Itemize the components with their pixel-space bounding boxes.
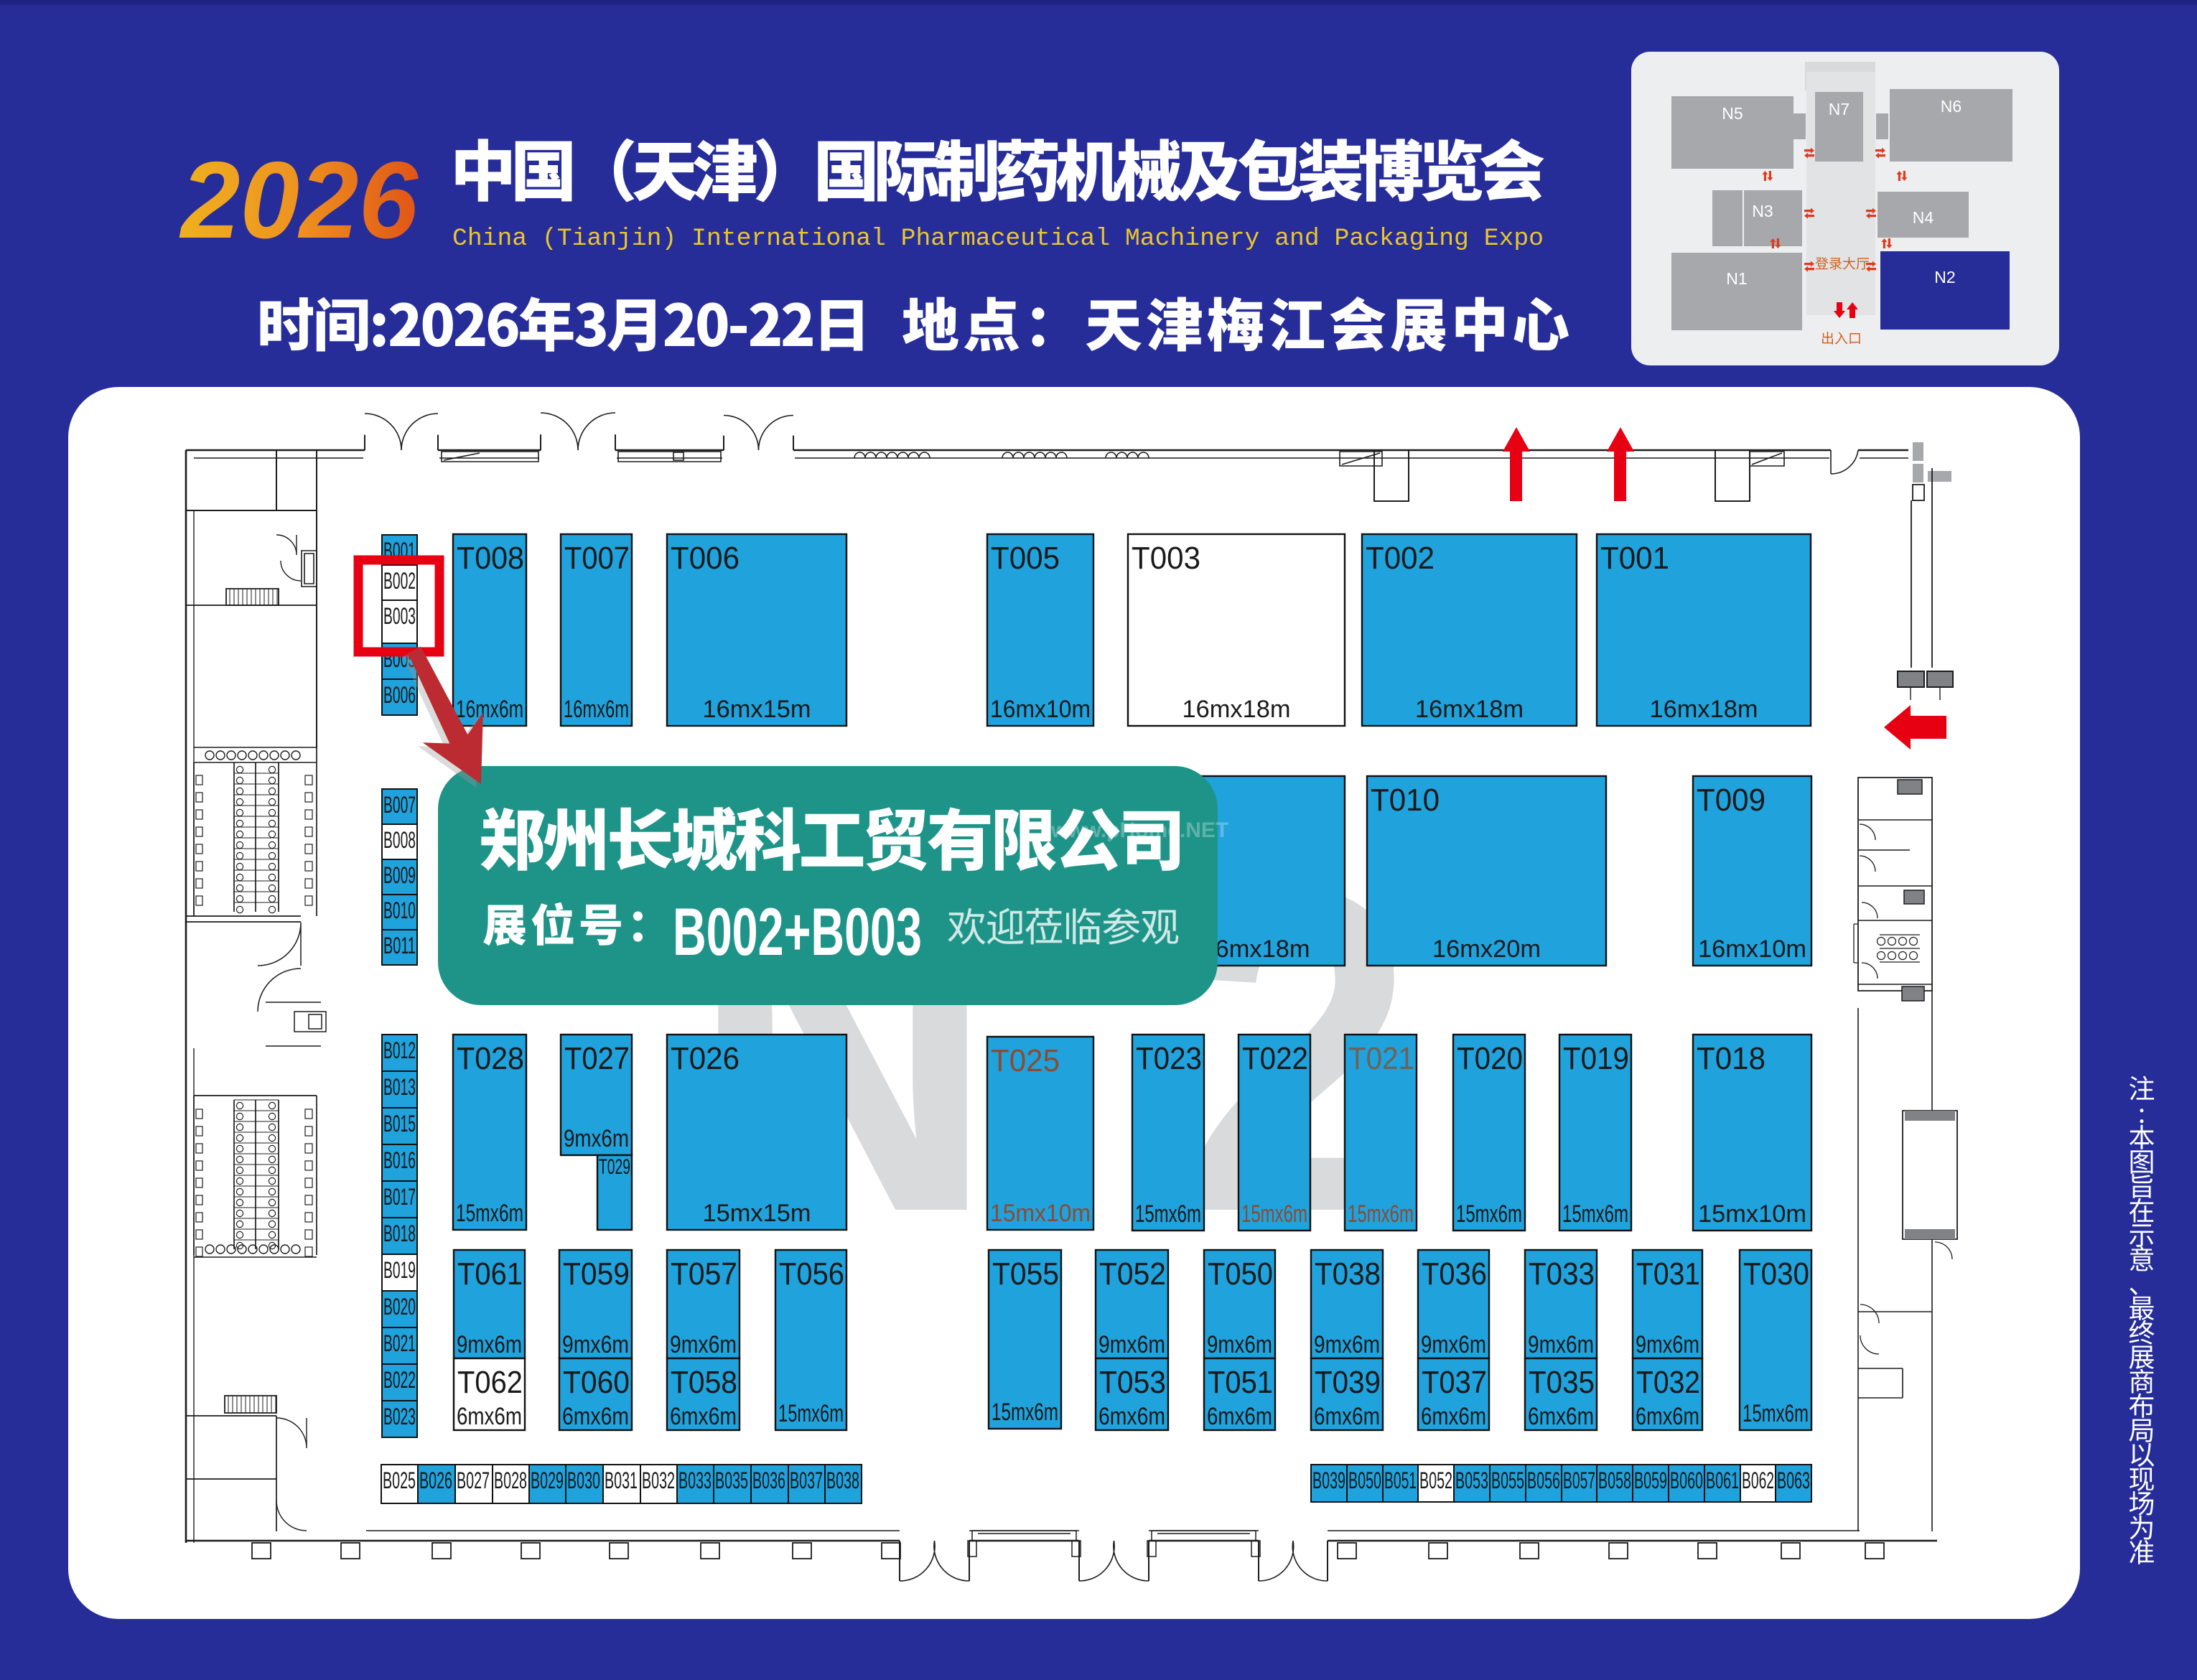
- svg-text:T059: T059: [563, 1256, 630, 1292]
- svg-text:B062: B062: [1742, 1467, 1774, 1493]
- svg-text:B011: B011: [383, 933, 416, 958]
- svg-text:B003: B003: [383, 603, 416, 629]
- svg-text:9mx6m: 9mx6m: [1207, 1331, 1272, 1358]
- svg-text:T033: T033: [1529, 1256, 1595, 1292]
- svg-text:6mx6m: 6mx6m: [457, 1403, 522, 1430]
- svg-text:T035: T035: [1529, 1365, 1595, 1400]
- svg-text:B007: B007: [383, 792, 416, 818]
- svg-text:N4: N4: [1913, 208, 1934, 227]
- svg-text:B055: B055: [1491, 1467, 1524, 1493]
- svg-text:T023: T023: [1136, 1041, 1202, 1076]
- svg-text:N5: N5: [1722, 104, 1743, 123]
- svg-text:N3: N3: [1752, 202, 1773, 220]
- svg-text:B031: B031: [605, 1467, 638, 1493]
- svg-text:N7: N7: [1829, 100, 1850, 118]
- svg-text:B023: B023: [383, 1404, 416, 1429]
- svg-text:www.pHome.NET: www.pHome.NET: [1050, 818, 1228, 842]
- svg-text:T009: T009: [1697, 783, 1765, 818]
- svg-text:T055: T055: [992, 1256, 1059, 1292]
- svg-text:B063: B063: [1777, 1467, 1810, 1493]
- svg-text:B015: B015: [383, 1111, 416, 1137]
- svg-text:9mx6m: 9mx6m: [670, 1331, 737, 1358]
- svg-text:15mx6m: 15mx6m: [778, 1400, 844, 1427]
- svg-text:T030: T030: [1743, 1256, 1809, 1292]
- svg-text:B057: B057: [1563, 1467, 1595, 1493]
- svg-text:T026: T026: [671, 1041, 740, 1076]
- svg-text:15mx15m: 15mx15m: [703, 1200, 811, 1227]
- svg-text:B002+B003: B002+B003: [673, 894, 922, 969]
- svg-text:6mx6m: 6mx6m: [670, 1403, 737, 1430]
- svg-text:B051: B051: [1384, 1467, 1417, 1493]
- svg-text:B018: B018: [383, 1221, 416, 1246]
- svg-text:N1: N1: [1726, 269, 1747, 288]
- svg-text:B019: B019: [383, 1257, 416, 1283]
- svg-text:6mx6m: 6mx6m: [562, 1403, 629, 1430]
- svg-text:B022: B022: [383, 1367, 416, 1393]
- svg-text:China (Tianjin) International: China (Tianjin) International Pharmaceut…: [452, 225, 1544, 253]
- svg-text:N6: N6: [1941, 97, 1962, 116]
- svg-text:B036: B036: [752, 1467, 785, 1493]
- svg-text:16mx10m: 16mx10m: [990, 696, 1091, 723]
- svg-text:16mx6m: 16mx6m: [456, 696, 523, 723]
- svg-text:T018: T018: [1697, 1041, 1765, 1076]
- svg-text:B026: B026: [419, 1467, 452, 1493]
- svg-text:B020: B020: [383, 1294, 416, 1320]
- svg-text:15mx6m: 15mx6m: [1241, 1200, 1307, 1228]
- svg-text:T038: T038: [1315, 1256, 1381, 1292]
- svg-text:B059: B059: [1634, 1467, 1667, 1493]
- svg-text:T027: T027: [564, 1041, 630, 1076]
- svg-text:6mx6m: 6mx6m: [1207, 1403, 1272, 1430]
- svg-text:T039: T039: [1315, 1365, 1381, 1400]
- svg-text:9mx6m: 9mx6m: [457, 1331, 522, 1358]
- svg-text:T022: T022: [1242, 1041, 1308, 1076]
- svg-text:T060: T060: [563, 1365, 630, 1400]
- svg-text:9mx6m: 9mx6m: [1528, 1331, 1594, 1358]
- svg-text:9mx6m: 9mx6m: [564, 1125, 629, 1152]
- svg-text:15mx6m: 15mx6m: [456, 1200, 523, 1227]
- svg-text:16mx18m: 16mx18m: [1415, 696, 1524, 723]
- svg-text:T002: T002: [1366, 541, 1435, 576]
- svg-text:T051: T051: [1208, 1365, 1273, 1400]
- svg-text:16mx15m: 16mx15m: [703, 696, 811, 723]
- svg-text:N2: N2: [1934, 268, 1955, 286]
- svg-text:6mx6m: 6mx6m: [1421, 1403, 1486, 1430]
- svg-text:T025: T025: [991, 1043, 1060, 1078]
- svg-text:B053: B053: [1455, 1467, 1488, 1493]
- svg-text:T037: T037: [1422, 1365, 1487, 1400]
- svg-text:16mx20m: 16mx20m: [1432, 935, 1541, 963]
- svg-text:B038: B038: [826, 1467, 859, 1493]
- svg-text:B027: B027: [457, 1467, 490, 1493]
- svg-text:B008: B008: [383, 827, 416, 853]
- svg-text:T028: T028: [457, 1041, 524, 1076]
- svg-text:T008: T008: [457, 541, 524, 576]
- svg-text:16mx18m: 16mx18m: [1183, 696, 1291, 723]
- svg-text:B025: B025: [383, 1467, 416, 1493]
- svg-text:T053: T053: [1099, 1365, 1166, 1400]
- svg-text:15mx6m: 15mx6m: [1456, 1200, 1522, 1228]
- svg-text:B029: B029: [531, 1467, 564, 1493]
- svg-text:6mx6m: 6mx6m: [1528, 1403, 1594, 1430]
- svg-text:B061: B061: [1706, 1467, 1739, 1493]
- svg-text:T062: T062: [457, 1365, 523, 1400]
- svg-text:B006: B006: [383, 682, 416, 708]
- svg-text:T061: T061: [457, 1256, 523, 1292]
- svg-text:T019: T019: [1563, 1041, 1629, 1076]
- svg-text:B010: B010: [383, 897, 416, 923]
- svg-text:T052: T052: [1099, 1256, 1166, 1292]
- svg-text:B039: B039: [1312, 1467, 1345, 1493]
- svg-text:B033: B033: [678, 1467, 712, 1493]
- svg-text:15mx10m: 15mx10m: [1698, 1200, 1806, 1228]
- svg-text:15mx6m: 15mx6m: [1348, 1200, 1414, 1228]
- svg-text:T057: T057: [671, 1256, 737, 1292]
- svg-text:T036: T036: [1422, 1256, 1487, 1292]
- svg-text:6mx6m: 6mx6m: [1636, 1403, 1699, 1430]
- svg-text:16mx10m: 16mx10m: [1698, 935, 1806, 963]
- svg-text:B021: B021: [383, 1330, 416, 1356]
- svg-text:B037: B037: [790, 1467, 823, 1493]
- svg-text:15mx6m: 15mx6m: [992, 1399, 1058, 1426]
- svg-text:9mx6m: 9mx6m: [1314, 1331, 1380, 1358]
- svg-text:T056: T056: [779, 1256, 844, 1292]
- svg-text:T007: T007: [564, 541, 630, 576]
- svg-text:B030: B030: [567, 1467, 600, 1493]
- svg-text:15mx10m: 15mx10m: [990, 1200, 1091, 1227]
- svg-text:B050: B050: [1348, 1467, 1381, 1493]
- svg-text:B017: B017: [383, 1184, 416, 1210]
- svg-text:16mx18m: 16mx18m: [1202, 935, 1310, 963]
- svg-text:B032: B032: [642, 1467, 675, 1493]
- svg-text:9mx6m: 9mx6m: [1098, 1331, 1165, 1358]
- svg-text:B016: B016: [383, 1147, 416, 1173]
- svg-text:T032: T032: [1636, 1365, 1700, 1400]
- svg-text:15mx6m: 15mx6m: [1135, 1200, 1201, 1228]
- svg-text:T058: T058: [671, 1365, 737, 1400]
- svg-text:B028: B028: [494, 1467, 527, 1493]
- svg-text:T006: T006: [671, 541, 740, 576]
- svg-text:15mx6m: 15mx6m: [1562, 1200, 1628, 1228]
- svg-text:B013: B013: [383, 1074, 416, 1100]
- svg-text:T010: T010: [1371, 783, 1440, 818]
- svg-text:16mx6m: 16mx6m: [564, 696, 629, 723]
- svg-text:15mx6m: 15mx6m: [1743, 1400, 1809, 1427]
- svg-text:16mx18m: 16mx18m: [1650, 696, 1758, 723]
- svg-text:6mx6m: 6mx6m: [1098, 1403, 1165, 1430]
- svg-text:T020: T020: [1457, 1041, 1523, 1076]
- svg-text:T005: T005: [991, 541, 1060, 576]
- svg-text:B052: B052: [1419, 1467, 1452, 1493]
- svg-text:T021: T021: [1348, 1041, 1414, 1076]
- svg-text:B035: B035: [715, 1467, 748, 1493]
- svg-text:6mx6m: 6mx6m: [1314, 1403, 1380, 1430]
- svg-text:T031: T031: [1636, 1256, 1700, 1292]
- svg-text:T029: T029: [599, 1155, 630, 1179]
- svg-text:9mx6m: 9mx6m: [562, 1331, 629, 1358]
- svg-text:T003: T003: [1132, 541, 1200, 576]
- svg-text:B002: B002: [383, 568, 416, 594]
- svg-text:T001: T001: [1600, 541, 1669, 576]
- svg-text:B060: B060: [1670, 1467, 1703, 1493]
- svg-text:2026: 2026: [179, 139, 419, 261]
- svg-text:B058: B058: [1598, 1467, 1631, 1493]
- svg-text:9mx6m: 9mx6m: [1636, 1331, 1699, 1358]
- svg-text:T050: T050: [1208, 1256, 1273, 1292]
- svg-text:9mx6m: 9mx6m: [1421, 1331, 1486, 1358]
- svg-text:B056: B056: [1527, 1467, 1560, 1493]
- svg-text:B012: B012: [383, 1037, 416, 1063]
- svg-text:B009: B009: [383, 862, 416, 888]
